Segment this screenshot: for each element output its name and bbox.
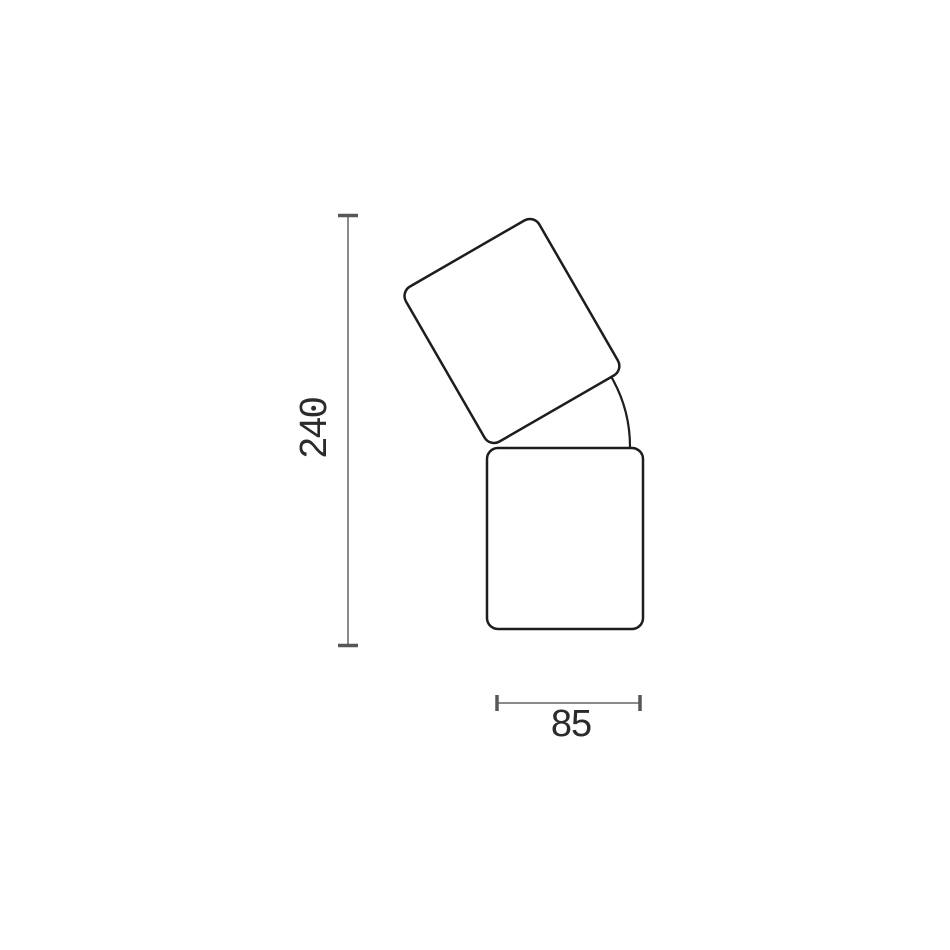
swivel-arc xyxy=(611,376,631,448)
height-dimension xyxy=(338,216,358,646)
lamp-head-outline xyxy=(401,215,624,447)
dimension-diagram: 240 85 xyxy=(0,0,950,950)
height-dimension-label: 240 xyxy=(295,398,333,458)
lamp-base-outline xyxy=(487,448,643,629)
product-outline-drawing xyxy=(0,0,950,950)
width-dimension-label: 85 xyxy=(551,705,591,743)
